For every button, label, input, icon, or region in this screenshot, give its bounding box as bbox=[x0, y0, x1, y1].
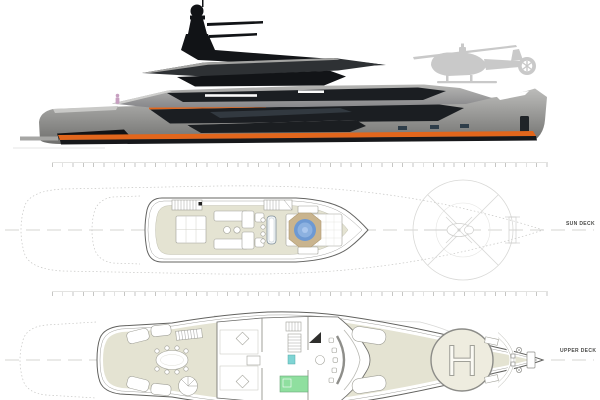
helicopter-silhouette bbox=[413, 44, 536, 84]
swim-platform bbox=[20, 137, 58, 141]
helicopter-top-view bbox=[424, 217, 474, 243]
hatch bbox=[264, 200, 292, 210]
sunbed bbox=[176, 216, 206, 243]
sun-deck-roof bbox=[142, 58, 382, 87]
upper-deck-plan: H bbox=[0, 298, 600, 400]
scale-ruler-bottom bbox=[52, 291, 548, 296]
teal-fixture bbox=[288, 355, 295, 364]
helicopter-skid bbox=[437, 81, 497, 83]
sun-deck-label: SUN DECK bbox=[566, 221, 595, 227]
scale-ruler-top bbox=[52, 162, 548, 167]
bow-window bbox=[520, 116, 529, 133]
helicopter-clearance-circle bbox=[413, 180, 520, 280]
spiral-stair bbox=[179, 377, 198, 396]
drawing-canvas: SUN DECK bbox=[0, 0, 600, 400]
sun-deck-plan bbox=[0, 170, 600, 291]
person-figure bbox=[116, 94, 120, 104]
pantry-green-room bbox=[280, 376, 308, 392]
upper-deck-structure bbox=[112, 85, 492, 108]
jacuzzi bbox=[289, 213, 321, 247]
mast-radar-array bbox=[181, 0, 386, 67]
helipad: H bbox=[431, 329, 493, 391]
yacht-side-profile bbox=[0, 0, 600, 162]
helipad-letter: H bbox=[446, 337, 478, 386]
upper-deck-label: UPPER DECK bbox=[560, 348, 596, 354]
deckhouse bbox=[217, 317, 370, 400]
helicopter-cabin bbox=[431, 53, 487, 77]
stairs bbox=[172, 200, 202, 210]
